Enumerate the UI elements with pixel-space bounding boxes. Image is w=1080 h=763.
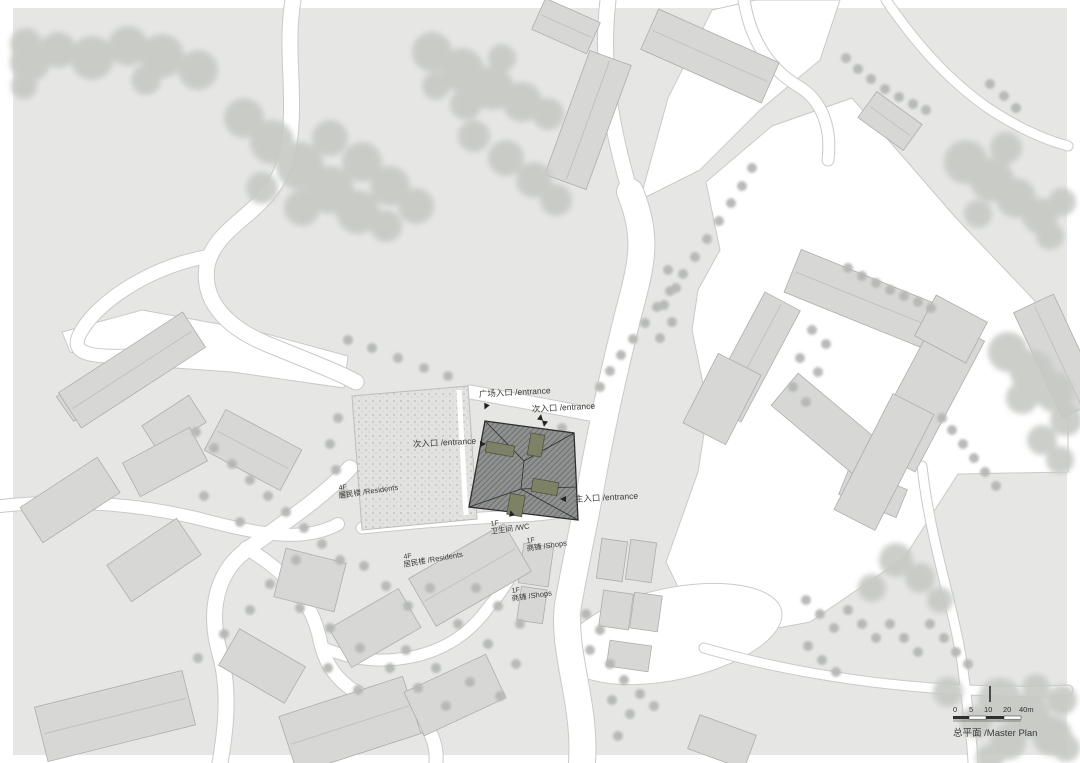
tree-dot <box>913 647 923 657</box>
tree-dot <box>866 74 876 84</box>
tree-dot <box>385 663 395 673</box>
tree-dot <box>323 663 333 673</box>
tree-dot <box>817 655 827 665</box>
plaza-layer <box>352 386 477 530</box>
tree-dot <box>925 619 935 629</box>
tree-canopy <box>450 88 482 120</box>
tree-dot <box>1011 103 1021 113</box>
main-hall-layer <box>469 421 578 520</box>
tree-dot <box>803 641 813 651</box>
tree-dot <box>640 318 650 328</box>
tree-canopy <box>858 574 886 602</box>
tree-dot <box>678 269 688 279</box>
tree-dot <box>857 271 867 281</box>
tree-dot <box>403 601 413 611</box>
tree-dot <box>585 645 595 655</box>
tree-dot <box>199 491 209 501</box>
tree-dot <box>625 709 635 719</box>
tree-dot <box>219 629 229 639</box>
tree-canopy <box>458 120 490 152</box>
tree-canopy <box>1006 382 1038 414</box>
tree-dot <box>969 453 979 463</box>
tree-dot <box>921 105 931 115</box>
tree-dot <box>843 605 853 615</box>
tree-dot <box>747 163 757 173</box>
tree-dot <box>913 297 923 307</box>
tree-canopy <box>11 73 37 99</box>
tree-dot <box>359 561 369 571</box>
tree-dot <box>951 647 961 657</box>
tree-canopy <box>70 36 114 80</box>
tree-dot <box>317 539 327 549</box>
tree-canopy <box>1052 734 1080 762</box>
tree-dot <box>325 439 335 449</box>
tree-dot <box>829 623 839 633</box>
scale-bar-segment <box>986 716 1004 719</box>
tree-canopy <box>964 200 992 228</box>
tree-dot <box>894 92 904 102</box>
tree-dot <box>367 343 377 353</box>
tree-dot <box>245 605 255 615</box>
tree-dot <box>857 619 867 629</box>
tree-dot <box>605 366 615 376</box>
tree-dot <box>702 234 712 244</box>
context-building <box>596 538 627 581</box>
context-building <box>630 592 663 632</box>
tree-dot <box>471 583 481 593</box>
tree-canopy <box>488 140 524 176</box>
tree-dot <box>885 619 895 629</box>
tree-dot <box>801 397 811 407</box>
tree-dot <box>958 439 968 449</box>
context-building <box>599 590 634 630</box>
tree-dot <box>659 300 669 310</box>
tree-dot <box>425 583 435 593</box>
tree-dot <box>333 413 343 423</box>
tree-dot <box>843 263 853 273</box>
tree-canopy <box>246 172 278 204</box>
tree-dot <box>209 443 219 453</box>
tree-dot <box>595 625 605 635</box>
tree-dot <box>815 609 825 619</box>
context-building <box>625 539 656 582</box>
tree-dot <box>690 252 700 262</box>
tree-dot <box>939 633 949 643</box>
scale-tick-label: 20 <box>1003 705 1011 714</box>
tree-dot <box>801 595 811 605</box>
tree-dot <box>795 353 805 363</box>
scale-tick-label: 10 <box>984 705 992 714</box>
tree-dot <box>908 99 918 109</box>
tree-dot <box>714 216 724 226</box>
drawing-title: 总平面 /Master Plan <box>953 727 1037 739</box>
tree-dot <box>737 181 747 191</box>
tree-dot <box>880 84 890 94</box>
tree-dot <box>788 382 798 392</box>
tree-dot <box>726 198 736 208</box>
tree-dot <box>419 363 429 373</box>
tree-dot <box>628 334 638 344</box>
tree-dot <box>885 285 895 295</box>
tree-dot <box>899 291 909 301</box>
tree-dot <box>871 278 881 288</box>
tree-dot <box>381 581 391 591</box>
tree-dot <box>245 475 255 485</box>
tree-dot <box>443 371 453 381</box>
tree-canopy <box>488 44 516 72</box>
scale-tick-label: 0 <box>953 705 957 714</box>
tree-dot <box>605 659 615 669</box>
tree-canopy <box>178 50 218 90</box>
tree-dot <box>335 555 345 565</box>
tree-dot <box>980 467 990 477</box>
tree-dot <box>235 517 245 527</box>
tree-dot <box>899 633 909 643</box>
tree-dot <box>295 603 305 613</box>
tree-canopy <box>10 28 42 60</box>
master-plan-page: 广场入口 /entrance次入口 /entrance次入口 /entrance… <box>0 0 1080 763</box>
tree-dot <box>926 303 936 313</box>
tree-dot <box>495 691 505 701</box>
tree-canopy <box>1047 685 1077 715</box>
tree-canopy <box>927 587 953 613</box>
tree-dot <box>353 685 363 695</box>
tree-canopy <box>532 98 564 130</box>
tree-dot <box>331 465 341 475</box>
tree-dot <box>401 645 411 655</box>
tree-canopy <box>370 210 402 242</box>
tree-dot <box>607 695 617 705</box>
tree-dot <box>999 91 1009 101</box>
tree-dot <box>595 382 605 392</box>
tree-dot <box>613 731 623 741</box>
tree-canopy <box>540 184 572 216</box>
scale-bar-segment <box>969 716 986 719</box>
tree-canopy <box>1048 188 1076 216</box>
tree-dot <box>963 659 973 669</box>
tree-dot <box>263 491 273 501</box>
tree-dot <box>937 413 947 423</box>
tree-dot <box>821 339 831 349</box>
tree-dot <box>511 659 521 669</box>
tree-canopy <box>990 132 1022 164</box>
tree-dot <box>441 701 451 711</box>
tree-dot <box>871 633 881 643</box>
tree-dot <box>807 325 817 335</box>
tree-dot <box>853 64 863 74</box>
tree-dot <box>667 317 677 327</box>
tree-dot <box>413 683 423 693</box>
tree-dot <box>281 507 291 517</box>
tree-canopy <box>1046 446 1074 474</box>
tree-canopy <box>312 120 348 156</box>
tree-canopy <box>933 677 963 707</box>
tree-dot <box>991 481 1001 491</box>
scale-bar-segment <box>1004 716 1021 719</box>
tree-dot <box>663 265 673 275</box>
tree-dot <box>655 333 665 343</box>
tree-dot <box>616 350 626 360</box>
tree-canopy <box>1022 674 1050 702</box>
scale-tick-label: 40m <box>1019 705 1034 714</box>
tree-dot <box>193 653 203 663</box>
tree-dot <box>985 79 995 89</box>
tree-dot <box>393 353 403 363</box>
scale-tick-label: 5 <box>969 705 973 714</box>
skylight <box>507 493 525 516</box>
tree-dot <box>635 689 645 699</box>
tree-dot <box>227 459 237 469</box>
tree-canopy <box>131 65 161 95</box>
tree-dot <box>343 335 353 345</box>
site-plan-drawing: 广场入口 /entrance次入口 /entrance次入口 /entrance… <box>0 0 1080 763</box>
tree-dot <box>453 619 463 629</box>
tree-dot <box>947 425 957 435</box>
tree-dot <box>841 53 851 63</box>
tree-canopy <box>284 190 320 226</box>
tree-dot <box>813 367 823 377</box>
tree-dot <box>619 675 629 685</box>
tree-dot <box>355 643 365 653</box>
scale-bar-segment <box>953 716 969 719</box>
tree-dot <box>515 619 525 629</box>
tree-dot <box>493 601 503 611</box>
tree-dot <box>831 667 841 677</box>
tree-dot <box>325 623 335 633</box>
tree-dot <box>291 555 301 565</box>
tree-canopy <box>1036 222 1064 250</box>
tree-dot <box>483 639 493 649</box>
tree-dot <box>465 677 475 687</box>
tree-dot <box>299 523 309 533</box>
tree-dot <box>191 427 201 437</box>
tree-dot <box>671 283 681 293</box>
tree-dot <box>581 609 591 619</box>
tree-canopy <box>422 72 450 100</box>
tree-dot <box>265 579 275 589</box>
tree-dot <box>649 701 659 711</box>
tree-dot <box>431 663 441 673</box>
tree-canopy <box>905 563 935 593</box>
tree-canopy <box>398 188 434 224</box>
